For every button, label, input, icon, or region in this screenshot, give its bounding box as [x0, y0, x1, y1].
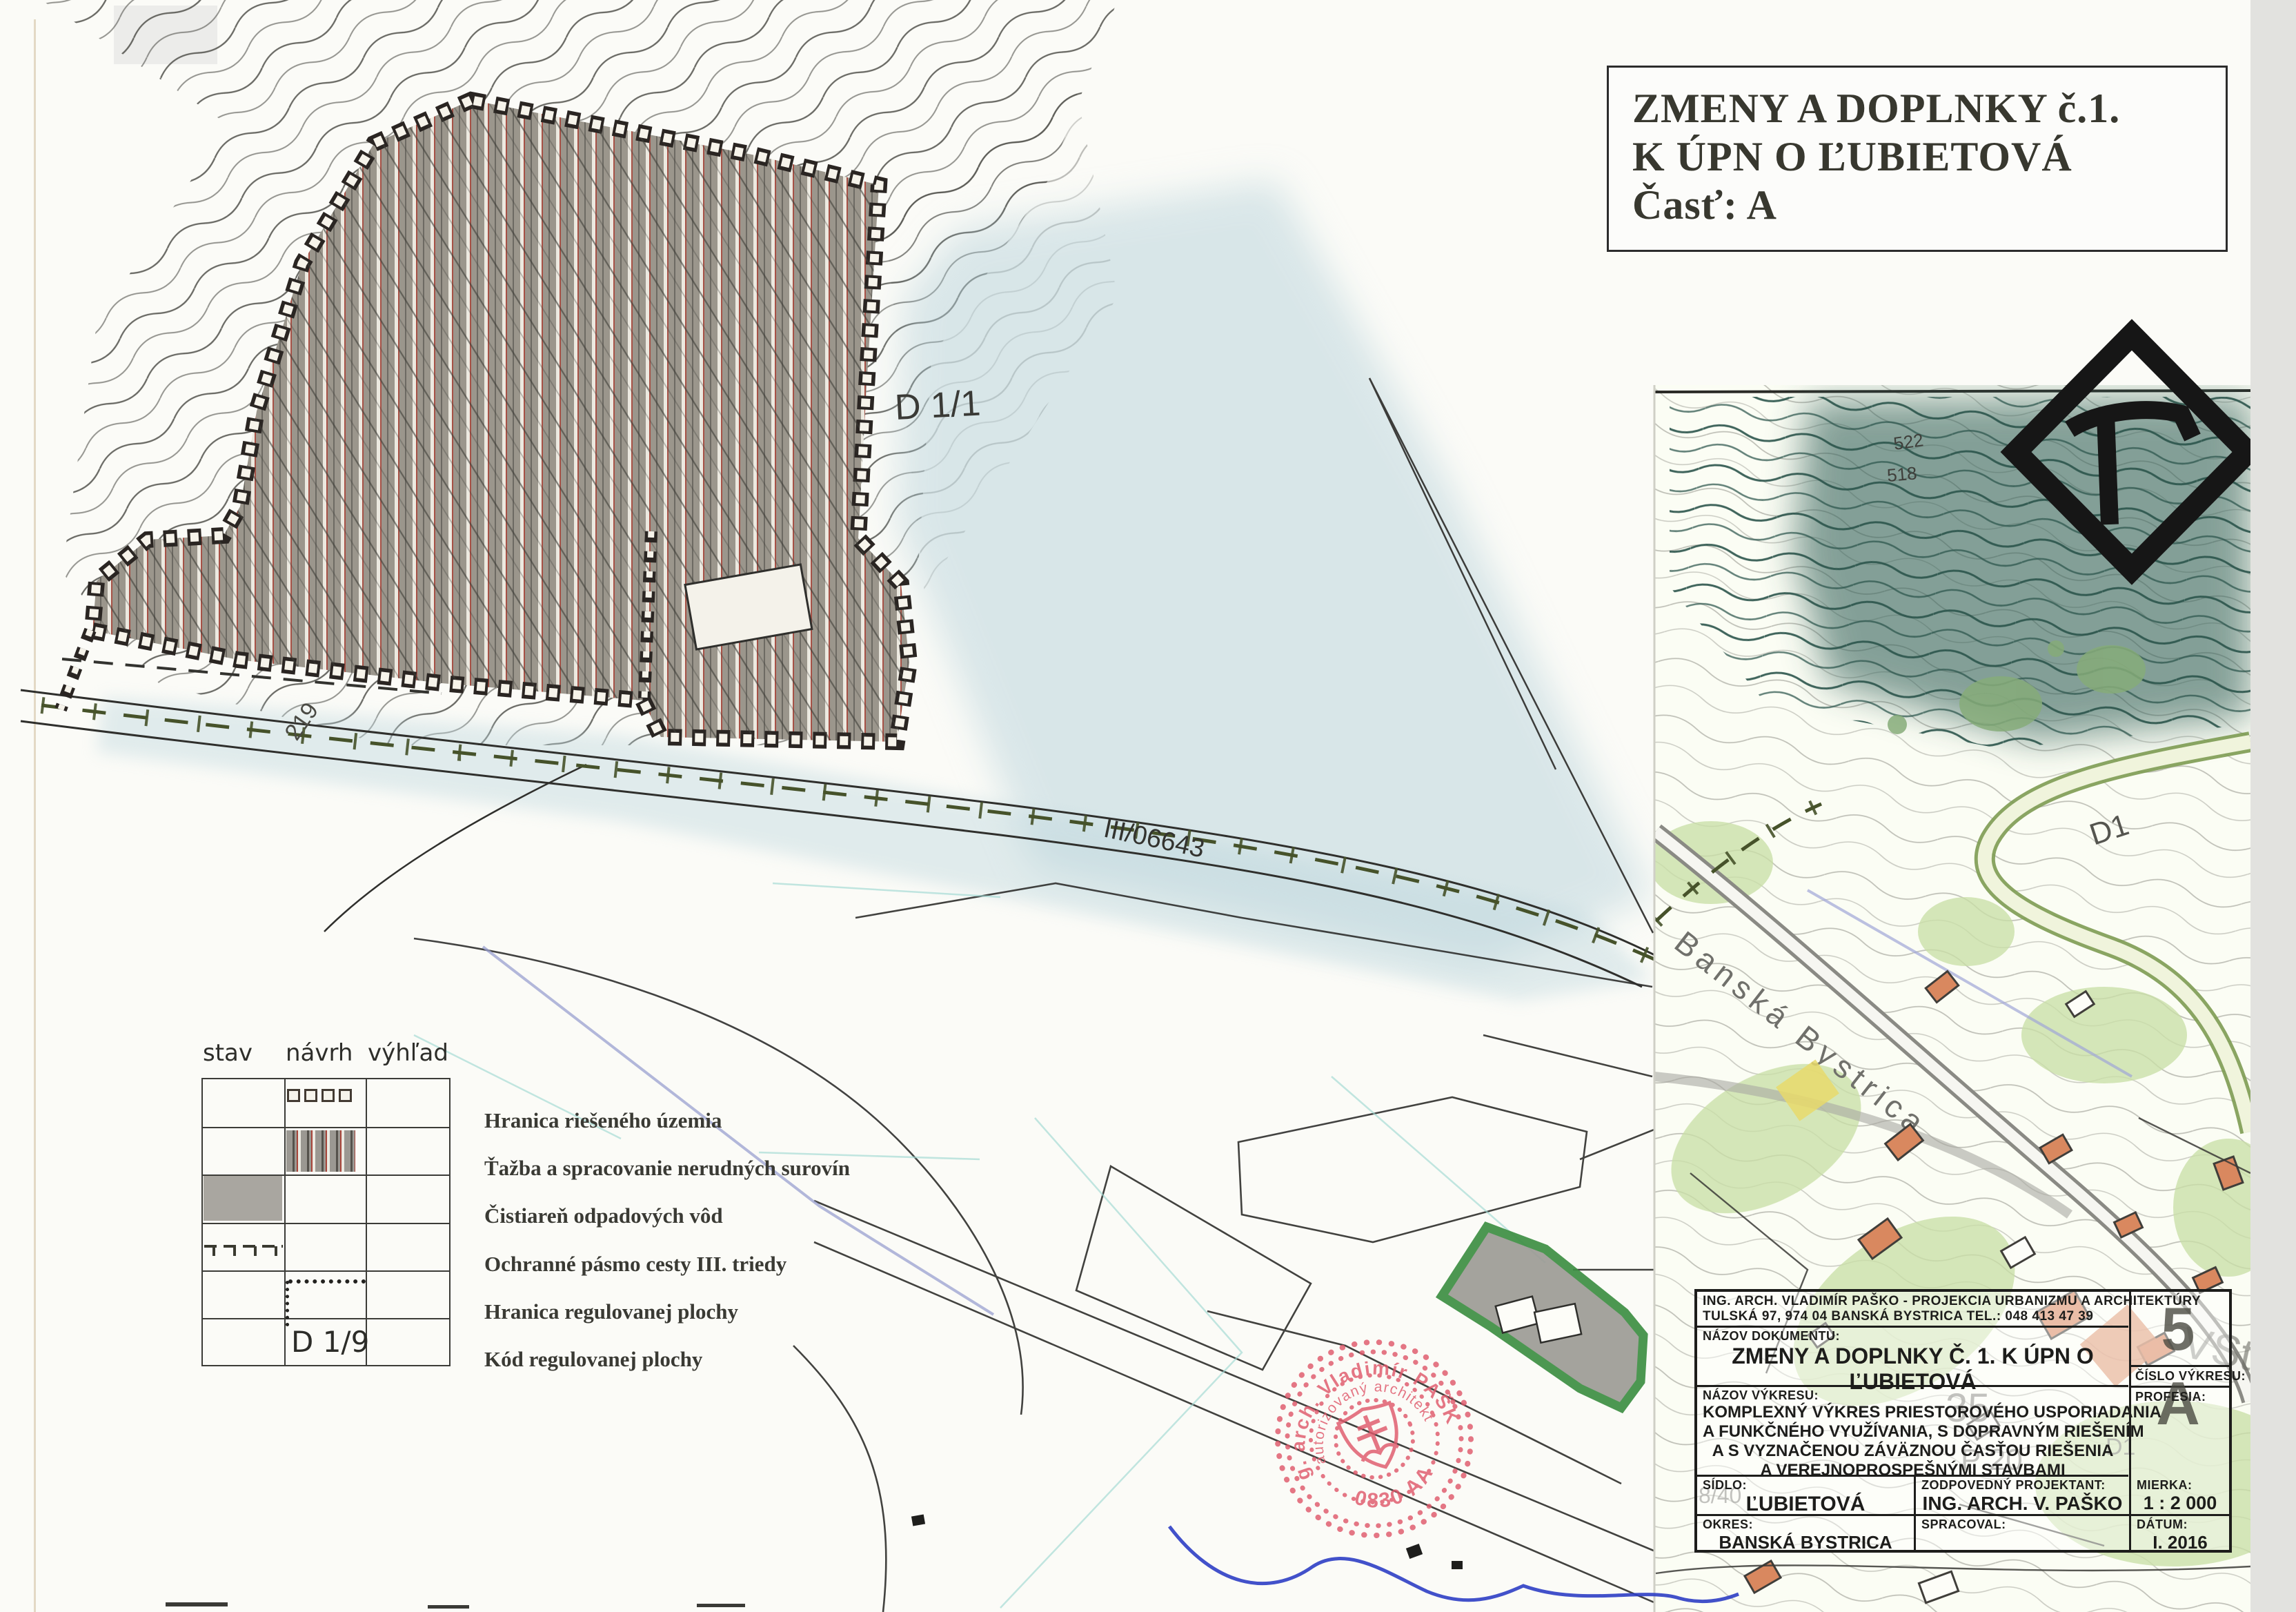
legend: stav návrh výhľad D 1/9 Hranica riešenéh… [200, 1034, 993, 1406]
okres-label: OKRES: [1703, 1517, 1908, 1532]
legend-symbol-mining-hatch [286, 1130, 355, 1172]
legend-symbol-cov-gray [204, 1176, 282, 1221]
sheet-number-big: 5 A [2131, 1292, 2229, 1365]
drawing-line3: A S VYZNAČENOU ZÁVÄZNOU ČASŤOU RIEŠENIA [1703, 1442, 2123, 1461]
scan-edge-line [34, 19, 36, 1612]
datum-value: I. 2016 [2137, 1532, 2224, 1553]
legend-item-2: Ťažba a spracovanie nerudných surovín [484, 1156, 850, 1181]
title-box: ZMENY A DOPLNKY č.1. K ÚPN O ĽUBIETOVÁ Č… [1607, 66, 2228, 252]
firm-name: ING. ARCH. VLADIMÍR PAŠKO - PROJEKCIA UR… [1703, 1294, 2123, 1309]
spracoval-label: SPRACOVAL: [1921, 1517, 2124, 1532]
mierka-label: MIERKA: [2137, 1478, 2224, 1493]
projektant-label: ZODPOVEDNÝ PROJEKTANT: [1921, 1478, 2124, 1493]
legend-item-3: Čistiareň odpadových vôd [484, 1203, 723, 1228]
legend-col-vyhlad: výhľad [368, 1039, 448, 1067]
architect-stamp: Ing. arch. Vladimír PAŠKO autorizovaný a… [1249, 1313, 1501, 1565]
legend-col-navrh: návrh [286, 1039, 353, 1067]
drawing-label: NÁZOV VÝKRESU: [1703, 1388, 2123, 1403]
legend-item-5: Hranica regulovanej plochy [484, 1299, 738, 1324]
scanned-plan-sheet: 219 [0, 0, 2296, 1612]
scan-margin-right [2250, 0, 2296, 1612]
legend-table: D 1/9 [201, 1078, 451, 1366]
datum-label: DÁTUM: [2137, 1517, 2224, 1532]
okres-value: BANSKÁ BYSTRICA [1703, 1532, 1908, 1553]
inset-top-border [1654, 391, 2250, 392]
drawing-line1: KOMPLEXNÝ VÝKRES PRIESTOROVÉHO USPORIADA… [1703, 1403, 2123, 1422]
contour-elevation-522: 522 [1892, 429, 1925, 454]
legend-symbol-protection-line [204, 1239, 283, 1260]
svg-text:0830 AA: 0830 AA [1345, 1456, 1445, 1524]
legend-symbol-regulated-boundary-corner [286, 1281, 289, 1326]
drawing-line2: A FUNKČNÉHO VYUŽÍVANIA, S DOPRAVNÝM RIEŠ… [1703, 1422, 2123, 1442]
drawing-title-block: ING. ARCH. VLADIMÍR PAŠKO - PROJEKCIA UR… [1694, 1289, 2232, 1553]
title-line-1: ZMENY A DOPLNKY č.1. [1632, 84, 2202, 132]
legend-item-6: Kód regulovanej plochy [484, 1347, 702, 1372]
area-code-label: D 1/1 [894, 384, 982, 428]
legend-col-stav: stav [203, 1039, 253, 1067]
cov-site [1442, 1227, 1643, 1408]
title-line-3: Časť: A [1632, 181, 2202, 229]
sidlo-value: ĽUBIETOVÁ [1703, 1493, 1908, 1516]
small-buildings [911, 1515, 1463, 1569]
legend-item-4: Ochranné pásmo cesty III. triedy [484, 1252, 786, 1277]
doc-name-line1: ZMENY A DOPLNKY Č. 1. K ÚPN O [1703, 1344, 2123, 1369]
legend-symbol-boundary-squares [287, 1089, 356, 1105]
legend-item-1: Hranica riešeného územia [484, 1108, 722, 1133]
mierka-value: 1 : 2 000 [2137, 1493, 2224, 1514]
firm-address: TULSKÁ 97, 974 04 BANSKÁ BYSTRICA TEL.: … [1703, 1309, 2123, 1324]
legend-symbol-regulated-boundary [288, 1279, 366, 1284]
contour-elevation-518: 518 [1886, 462, 1918, 486]
legend-symbol-area-code: D 1/9 [291, 1325, 369, 1359]
title-line-2: K ÚPN O ĽUBIETOVÁ [1632, 132, 2202, 181]
projektant-value: ING. ARCH. V. PAŠKO [1921, 1493, 2124, 1515]
sidlo-label: SÍDLO: [1703, 1478, 1908, 1493]
doc-label: NÁZOV DOKUMENTU: [1703, 1329, 2123, 1344]
stamp-number: 0830 AA [1345, 1456, 1445, 1524]
